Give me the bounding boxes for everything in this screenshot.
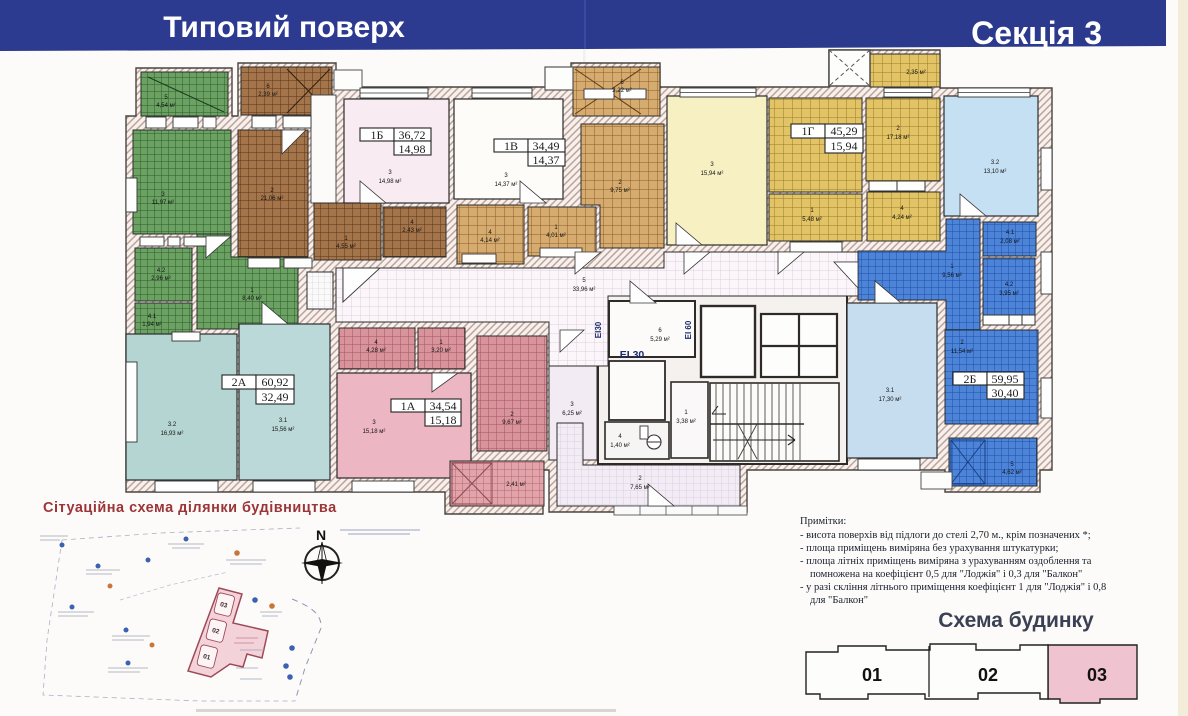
svg-text:16,93 м²: 16,93 м² — [161, 431, 184, 437]
svg-text:14,37: 14,37 — [533, 153, 560, 167]
svg-text:30,40: 30,40 — [992, 386, 1019, 400]
svg-text:14,37 м²: 14,37 м² — [495, 182, 518, 188]
svg-text:ЕІ 60: ЕІ 60 — [684, 320, 693, 339]
svg-text:17,18 м²: 17,18 м² — [887, 135, 910, 141]
svg-text:Типовий поверх: Типовий поверх — [163, 11, 405, 44]
svg-text:3.2: 3.2 — [991, 160, 1000, 166]
svg-text:2,43 м²: 2,43 м² — [402, 228, 421, 234]
svg-text:59,95: 59,95 — [992, 372, 1019, 386]
svg-text:1Г: 1Г — [802, 124, 815, 138]
svg-text:2,39 м²: 2,39 м² — [258, 92, 277, 98]
svg-text:03: 03 — [1087, 665, 1107, 685]
svg-text:3,38 м²: 3,38 м² — [676, 419, 695, 425]
svg-text:- висота поверхів від підлоги: - висота поверхів від підлоги до стелі 2… — [800, 530, 1091, 541]
svg-text:21,06 м²: 21,06 м² — [261, 196, 284, 202]
svg-text:4.1: 4.1 — [148, 314, 157, 320]
svg-text:4.2: 4.2 — [1005, 282, 1014, 288]
svg-text:3.1: 3.1 — [886, 388, 895, 394]
svg-text:15,56 м²: 15,56 м² — [272, 427, 295, 433]
svg-text:1,40 м²: 1,40 м² — [610, 443, 629, 449]
svg-text:- площа літніх приміщень вимір: - площа літніх приміщень виміряна з урах… — [800, 556, 1092, 567]
svg-text:11,97 м²: 11,97 м² — [152, 200, 174, 206]
svg-text:9,75 м²: 9,75 м² — [610, 188, 629, 194]
svg-text:3.1: 3.1 — [279, 418, 288, 424]
svg-text:15,18 м²: 15,18 м² — [363, 429, 386, 435]
svg-text:2Б: 2Б — [964, 372, 977, 386]
svg-text:Секція 3: Секція 3 — [971, 15, 1102, 51]
svg-text:4,14 м²: 4,14 м² — [480, 238, 499, 244]
svg-text:- у разі скління літнього прим: - у разі скління літнього приміщення кое… — [800, 582, 1106, 593]
svg-text:для "Балкон": для "Балкон" — [810, 595, 868, 606]
svg-text:Схема будинку: Схема будинку — [938, 609, 1094, 632]
svg-text:1В: 1В — [504, 139, 518, 153]
svg-text:7,65 м²: 7,65 м² — [630, 485, 649, 491]
svg-text:4.1: 4.1 — [1006, 230, 1015, 236]
svg-text:1А: 1А — [401, 399, 416, 413]
svg-text:15,94 м²: 15,94 м² — [701, 171, 724, 177]
svg-text:15,94: 15,94 — [831, 139, 858, 153]
svg-text:02: 02 — [978, 665, 998, 685]
svg-text:11,54 м²: 11,54 м² — [951, 349, 973, 355]
svg-text:2А: 2А — [232, 375, 247, 389]
svg-text:9,67 м²: 9,67 м² — [502, 420, 521, 426]
svg-text:17,30 м²: 17,30 м² — [879, 397, 902, 403]
svg-text:2,08 м²: 2,08 м² — [1000, 239, 1019, 245]
svg-text:4,55 м²: 4,55 м² — [336, 244, 355, 250]
svg-text:45,29: 45,29 — [831, 124, 858, 138]
svg-text:14,98 м²: 14,98 м² — [379, 179, 402, 185]
svg-text:32,49: 32,49 — [262, 390, 289, 404]
svg-text:4,28 м²: 4,28 м² — [366, 348, 385, 354]
svg-text:33,96 м²: 33,96 м² — [573, 287, 596, 293]
svg-text:Сітуаційна схема ділянки будів: Сітуаційна схема ділянки будівництва — [43, 500, 337, 516]
svg-text:Примітки:: Примітки: — [800, 516, 846, 527]
svg-text:2,35 м²: 2,35 м² — [906, 70, 925, 76]
svg-text:1Б: 1Б — [371, 128, 384, 142]
svg-text:36,72: 36,72 — [399, 128, 426, 142]
svg-text:3,95 м²: 3,95 м² — [999, 291, 1018, 297]
svg-text:15,18: 15,18 — [430, 413, 457, 427]
svg-text:13,10 м²: 13,10 м² — [984, 169, 1007, 175]
svg-text:2,41 м²: 2,41 м² — [506, 482, 525, 488]
svg-text:2,22 м²: 2,22 м² — [612, 88, 631, 94]
svg-text:- площа приміщень виміряна без: - площа приміщень виміряна без урахуванн… — [800, 543, 1059, 554]
svg-text:N: N — [316, 527, 326, 543]
svg-text:5,48 м²: 5,48 м² — [802, 217, 821, 223]
svg-text:9,56 м²: 9,56 м² — [942, 273, 961, 279]
svg-text:ЕІ30: ЕІ30 — [594, 321, 603, 338]
svg-text:14,98: 14,98 — [399, 142, 426, 156]
svg-text:6,25 м²: 6,25 м² — [562, 411, 581, 417]
svg-text:60,92: 60,92 — [262, 375, 289, 389]
svg-text:4,24 м²: 4,24 м² — [892, 215, 911, 221]
svg-text:34,49: 34,49 — [533, 139, 560, 153]
svg-text:1,94 м²: 1,94 м² — [142, 322, 161, 328]
svg-text:помножена на коефіцієнт 0,5 дл: помножена на коефіцієнт 0,5 для "Лоджія"… — [810, 569, 1082, 580]
svg-text:4,62 м²: 4,62 м² — [1002, 470, 1021, 476]
svg-text:34,54: 34,54 — [430, 399, 457, 413]
svg-text:2,96 м²: 2,96 м² — [151, 276, 170, 282]
svg-text:ЕІ 30: ЕІ 30 — [620, 349, 645, 361]
svg-text:4,54 м²: 4,54 м² — [156, 103, 175, 109]
svg-text:3,20 м²: 3,20 м² — [431, 348, 450, 354]
svg-text:4,01 м²: 4,01 м² — [546, 233, 565, 239]
svg-text:4.2: 4.2 — [157, 268, 166, 274]
svg-text:3.2: 3.2 — [168, 422, 177, 428]
svg-text:5,29 м²: 5,29 м² — [650, 337, 669, 343]
svg-text:01: 01 — [862, 665, 882, 685]
svg-text:8,40 м²: 8,40 м² — [242, 296, 261, 302]
